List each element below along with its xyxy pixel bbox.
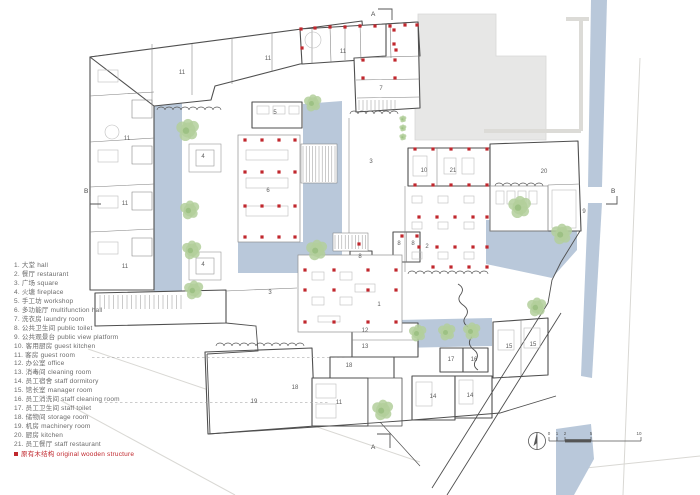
wooden-column-dot bbox=[431, 147, 434, 150]
wooden-column-dot bbox=[361, 76, 364, 79]
wooden-column-dot bbox=[299, 27, 302, 30]
wooden-column-dot bbox=[393, 58, 396, 61]
legend-item: 9. 公共观景台public view platform bbox=[14, 334, 134, 343]
room-storage-a bbox=[330, 357, 394, 379]
block-guest-kitchen-staff-restaurant bbox=[408, 148, 490, 186]
wooden-column-dot bbox=[260, 138, 263, 141]
tree-icon bbox=[399, 125, 406, 132]
wooden-column-dot bbox=[394, 48, 397, 51]
wooden-column-dot bbox=[485, 147, 488, 150]
wooden-column-dot bbox=[393, 76, 396, 79]
scale-label: 10 bbox=[636, 431, 642, 436]
pond-bottom bbox=[556, 424, 594, 495]
legend-note: 原有木结构 original wooden structure bbox=[14, 451, 134, 460]
wooden-column-dot bbox=[243, 204, 246, 207]
room-number-label: 3 bbox=[369, 159, 373, 165]
room-number-label: 4 bbox=[201, 262, 205, 268]
legend-item: 18. 储物间storage room bbox=[14, 414, 134, 423]
legend-item: 2. 餐厅restaurant bbox=[14, 271, 134, 280]
section-marker-tick bbox=[606, 196, 617, 204]
wooden-column-dot bbox=[293, 204, 296, 207]
room-number-label: 11 bbox=[124, 136, 131, 142]
room-number-label: 13 bbox=[362, 344, 369, 350]
room-number-label: 20 bbox=[541, 169, 548, 175]
legend-item: 7. 洗衣房laundry room bbox=[14, 316, 134, 325]
room-number-label: 2 bbox=[425, 244, 429, 250]
legend: 1. 大堂hall2. 餐厅restaurant3. 广场square4. 火塘… bbox=[14, 262, 134, 460]
legend-item: 21. 员工餐厅staff restaurant bbox=[14, 441, 134, 450]
room-number-label: 11 bbox=[336, 400, 343, 406]
wooden-column-dot bbox=[392, 28, 395, 31]
room-number-label: 14 bbox=[467, 393, 474, 399]
tree-icon bbox=[399, 116, 406, 123]
wooden-column-dot bbox=[435, 245, 438, 248]
section-marker-label: B bbox=[611, 188, 615, 195]
legend-item: 4. 火塘fireplace bbox=[14, 289, 134, 298]
wooden-column-dot bbox=[467, 265, 470, 268]
wooden-column-dot bbox=[485, 265, 488, 268]
scale-label: 0 bbox=[548, 431, 551, 436]
room-number-label: 15 bbox=[530, 342, 537, 348]
wooden-column-dot bbox=[366, 288, 369, 291]
wooden-column-dot bbox=[394, 268, 397, 271]
room-number-label: 4 bbox=[201, 154, 205, 160]
section-marker-label: B bbox=[84, 188, 88, 195]
wooden-column-dot bbox=[417, 215, 420, 218]
wooden-column-dot bbox=[453, 245, 456, 248]
tree-icon bbox=[399, 134, 406, 141]
wooden-column-dot bbox=[415, 23, 418, 26]
wooden-column-dot bbox=[388, 24, 391, 27]
section-marker-tick bbox=[377, 434, 390, 448]
room-number-label: 11 bbox=[340, 49, 347, 55]
room-number-label: 15 bbox=[506, 344, 513, 350]
wooden-column-dot bbox=[277, 204, 280, 207]
wooden-column-dot bbox=[415, 234, 418, 237]
wooden-column-dot bbox=[449, 183, 452, 186]
tree-icon bbox=[180, 201, 199, 220]
wooden-column-dot bbox=[392, 42, 395, 45]
section-marker-tick bbox=[378, 9, 392, 20]
room-number-label: 18 bbox=[346, 363, 353, 369]
wooden-column-dot bbox=[260, 170, 263, 173]
room-number-label: 17 bbox=[448, 357, 455, 363]
wooden-column-dot bbox=[485, 215, 488, 218]
wooden-column-dot bbox=[277, 138, 280, 141]
wooden-column-dot bbox=[243, 235, 246, 238]
wooden-column-dot bbox=[260, 235, 263, 238]
wooden-column-dot bbox=[313, 26, 316, 29]
wooden-column-dot bbox=[243, 138, 246, 141]
north-arrow bbox=[529, 432, 546, 450]
room-number-label: 19 bbox=[251, 399, 258, 405]
wooden-column-dot bbox=[332, 268, 335, 271]
wooden-column-dot bbox=[449, 265, 452, 268]
wooden-column-dot bbox=[394, 320, 397, 323]
legend-note-en: original wooden structure bbox=[57, 451, 135, 458]
wooden-column-dot bbox=[332, 288, 335, 291]
wooden-column-dot bbox=[373, 24, 376, 27]
room-number-label: 16 bbox=[471, 357, 478, 363]
legend-item: 15. 馆长室manager room bbox=[14, 387, 134, 396]
wooden-column-dot bbox=[485, 183, 488, 186]
section-marker-label: A bbox=[371, 444, 376, 451]
room-number-label: 21 bbox=[450, 168, 457, 174]
room-number-label: 10 bbox=[421, 168, 428, 174]
legend-item: 20. 厨房kitchen bbox=[14, 432, 134, 441]
wooden-column-dot bbox=[467, 147, 470, 150]
room-machinery bbox=[205, 348, 315, 434]
wooden-column-dot bbox=[453, 215, 456, 218]
legend-item: 19. 机房machinery room bbox=[14, 423, 134, 432]
wooden-column-dot bbox=[471, 215, 474, 218]
section-marker-label: A bbox=[371, 11, 376, 18]
legend-item: 10. 客用厨房guest kitchen bbox=[14, 343, 134, 352]
short-diagonal bbox=[380, 422, 420, 466]
room-number-label: 18 bbox=[292, 385, 299, 391]
wooden-column-dot bbox=[431, 183, 434, 186]
legend-item: 6. 多功能厅multifunction hall bbox=[14, 307, 134, 316]
wooden-column-dot bbox=[243, 170, 246, 173]
wooden-column-dot bbox=[361, 58, 364, 61]
adjacent-building-mass bbox=[415, 14, 546, 140]
pavilion-hall bbox=[298, 255, 402, 332]
wooden-column-dot bbox=[293, 235, 296, 238]
wooden-column-dot bbox=[394, 288, 397, 291]
legend-item: 17. 员工卫生间staff toilet bbox=[14, 405, 134, 414]
wooden-column-dot bbox=[303, 288, 306, 291]
wooden-column-dot bbox=[485, 245, 488, 248]
wooden-column-dot bbox=[413, 183, 416, 186]
legend-item: 16. 员工消洗间staff cleaning room bbox=[14, 396, 134, 405]
wooden-column-dot bbox=[403, 23, 406, 26]
scale-label: 5 bbox=[590, 431, 593, 436]
legend-note-zh: 原有木结构 bbox=[21, 451, 55, 458]
wooden-column-dot bbox=[435, 215, 438, 218]
red-square-icon bbox=[14, 452, 18, 456]
tree-icon bbox=[182, 241, 201, 260]
wooden-column-dot bbox=[358, 24, 361, 27]
wooden-column-dot bbox=[293, 170, 296, 173]
legend-item: 1. 大堂hall bbox=[14, 262, 134, 271]
room-number-label: 9 bbox=[582, 209, 586, 215]
wooden-column-dot bbox=[417, 245, 420, 248]
wooden-column-dot bbox=[300, 46, 303, 49]
wooden-column-dot bbox=[413, 147, 416, 150]
wooden-column-dot bbox=[343, 25, 346, 28]
wooden-column-dot bbox=[471, 245, 474, 248]
stream-lower bbox=[581, 203, 602, 378]
room-number-label: 14 bbox=[430, 394, 437, 400]
wooden-column-dot bbox=[277, 235, 280, 238]
room-number-label: 11 bbox=[265, 56, 272, 62]
wooden-column-dot bbox=[293, 138, 296, 141]
floor-plan-page: 1111111111111175443361021202888911213181… bbox=[0, 0, 700, 495]
room-number-label: 12 bbox=[362, 328, 369, 334]
wooden-column-dot bbox=[467, 183, 470, 186]
wooden-column-dot bbox=[366, 268, 369, 271]
room-number-label: 11 bbox=[179, 70, 186, 76]
wooden-column-dot bbox=[260, 204, 263, 207]
wooden-column-dot bbox=[449, 147, 452, 150]
water-left-strip bbox=[154, 103, 182, 300]
wooden-column-dot bbox=[328, 25, 331, 28]
wooden-column-dot bbox=[332, 320, 335, 323]
legend-list: 1. 大堂hall2. 餐厅restaurant3. 广场square4. 火塘… bbox=[14, 262, 134, 450]
wooden-column-dot bbox=[431, 265, 434, 268]
legend-item: 3. 广场square bbox=[14, 280, 134, 289]
room-number-label: 11 bbox=[122, 201, 129, 207]
wooden-column-dot bbox=[366, 320, 369, 323]
wooden-column-dot bbox=[303, 268, 306, 271]
tree-icon bbox=[527, 298, 546, 317]
legend-item: 8. 公共卫生间public toilet bbox=[14, 325, 134, 334]
stream-upper bbox=[588, 0, 607, 187]
wooden-column-dot bbox=[357, 242, 360, 245]
room-number-label: 3 bbox=[268, 290, 272, 296]
legend-item: 14. 员工宿舍staff dormitory bbox=[14, 378, 134, 387]
wooden-column-dot bbox=[277, 170, 280, 173]
room-dormitory-b bbox=[455, 376, 492, 418]
legend-item: 5. 手工坊workshop bbox=[14, 298, 134, 307]
wooden-column-dot bbox=[400, 234, 403, 237]
wooden-column-dot bbox=[303, 320, 306, 323]
